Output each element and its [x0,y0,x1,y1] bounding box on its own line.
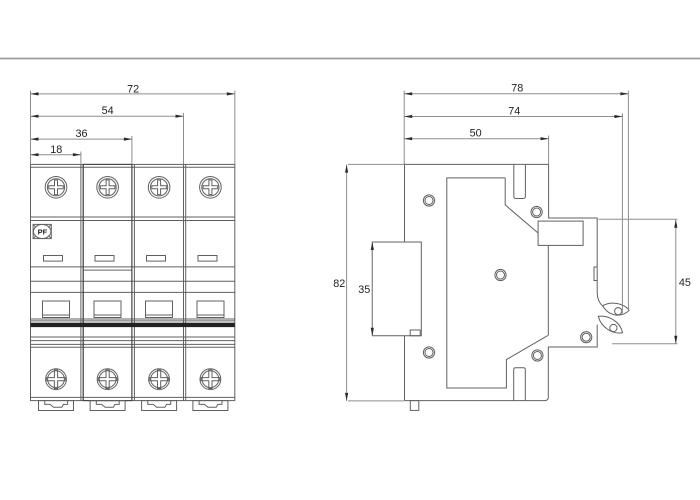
svg-text:82: 82 [333,278,345,290]
svg-text:54: 54 [102,105,114,117]
svg-text:18: 18 [50,144,62,156]
svg-text:36: 36 [75,128,87,140]
svg-text:72: 72 [127,83,139,95]
svg-text:35: 35 [358,284,370,296]
svg-text:PF: PF [38,227,48,236]
svg-text:50: 50 [470,128,482,140]
svg-text:45: 45 [679,277,691,289]
svg-text:74: 74 [508,105,520,117]
svg-text:78: 78 [511,83,523,95]
